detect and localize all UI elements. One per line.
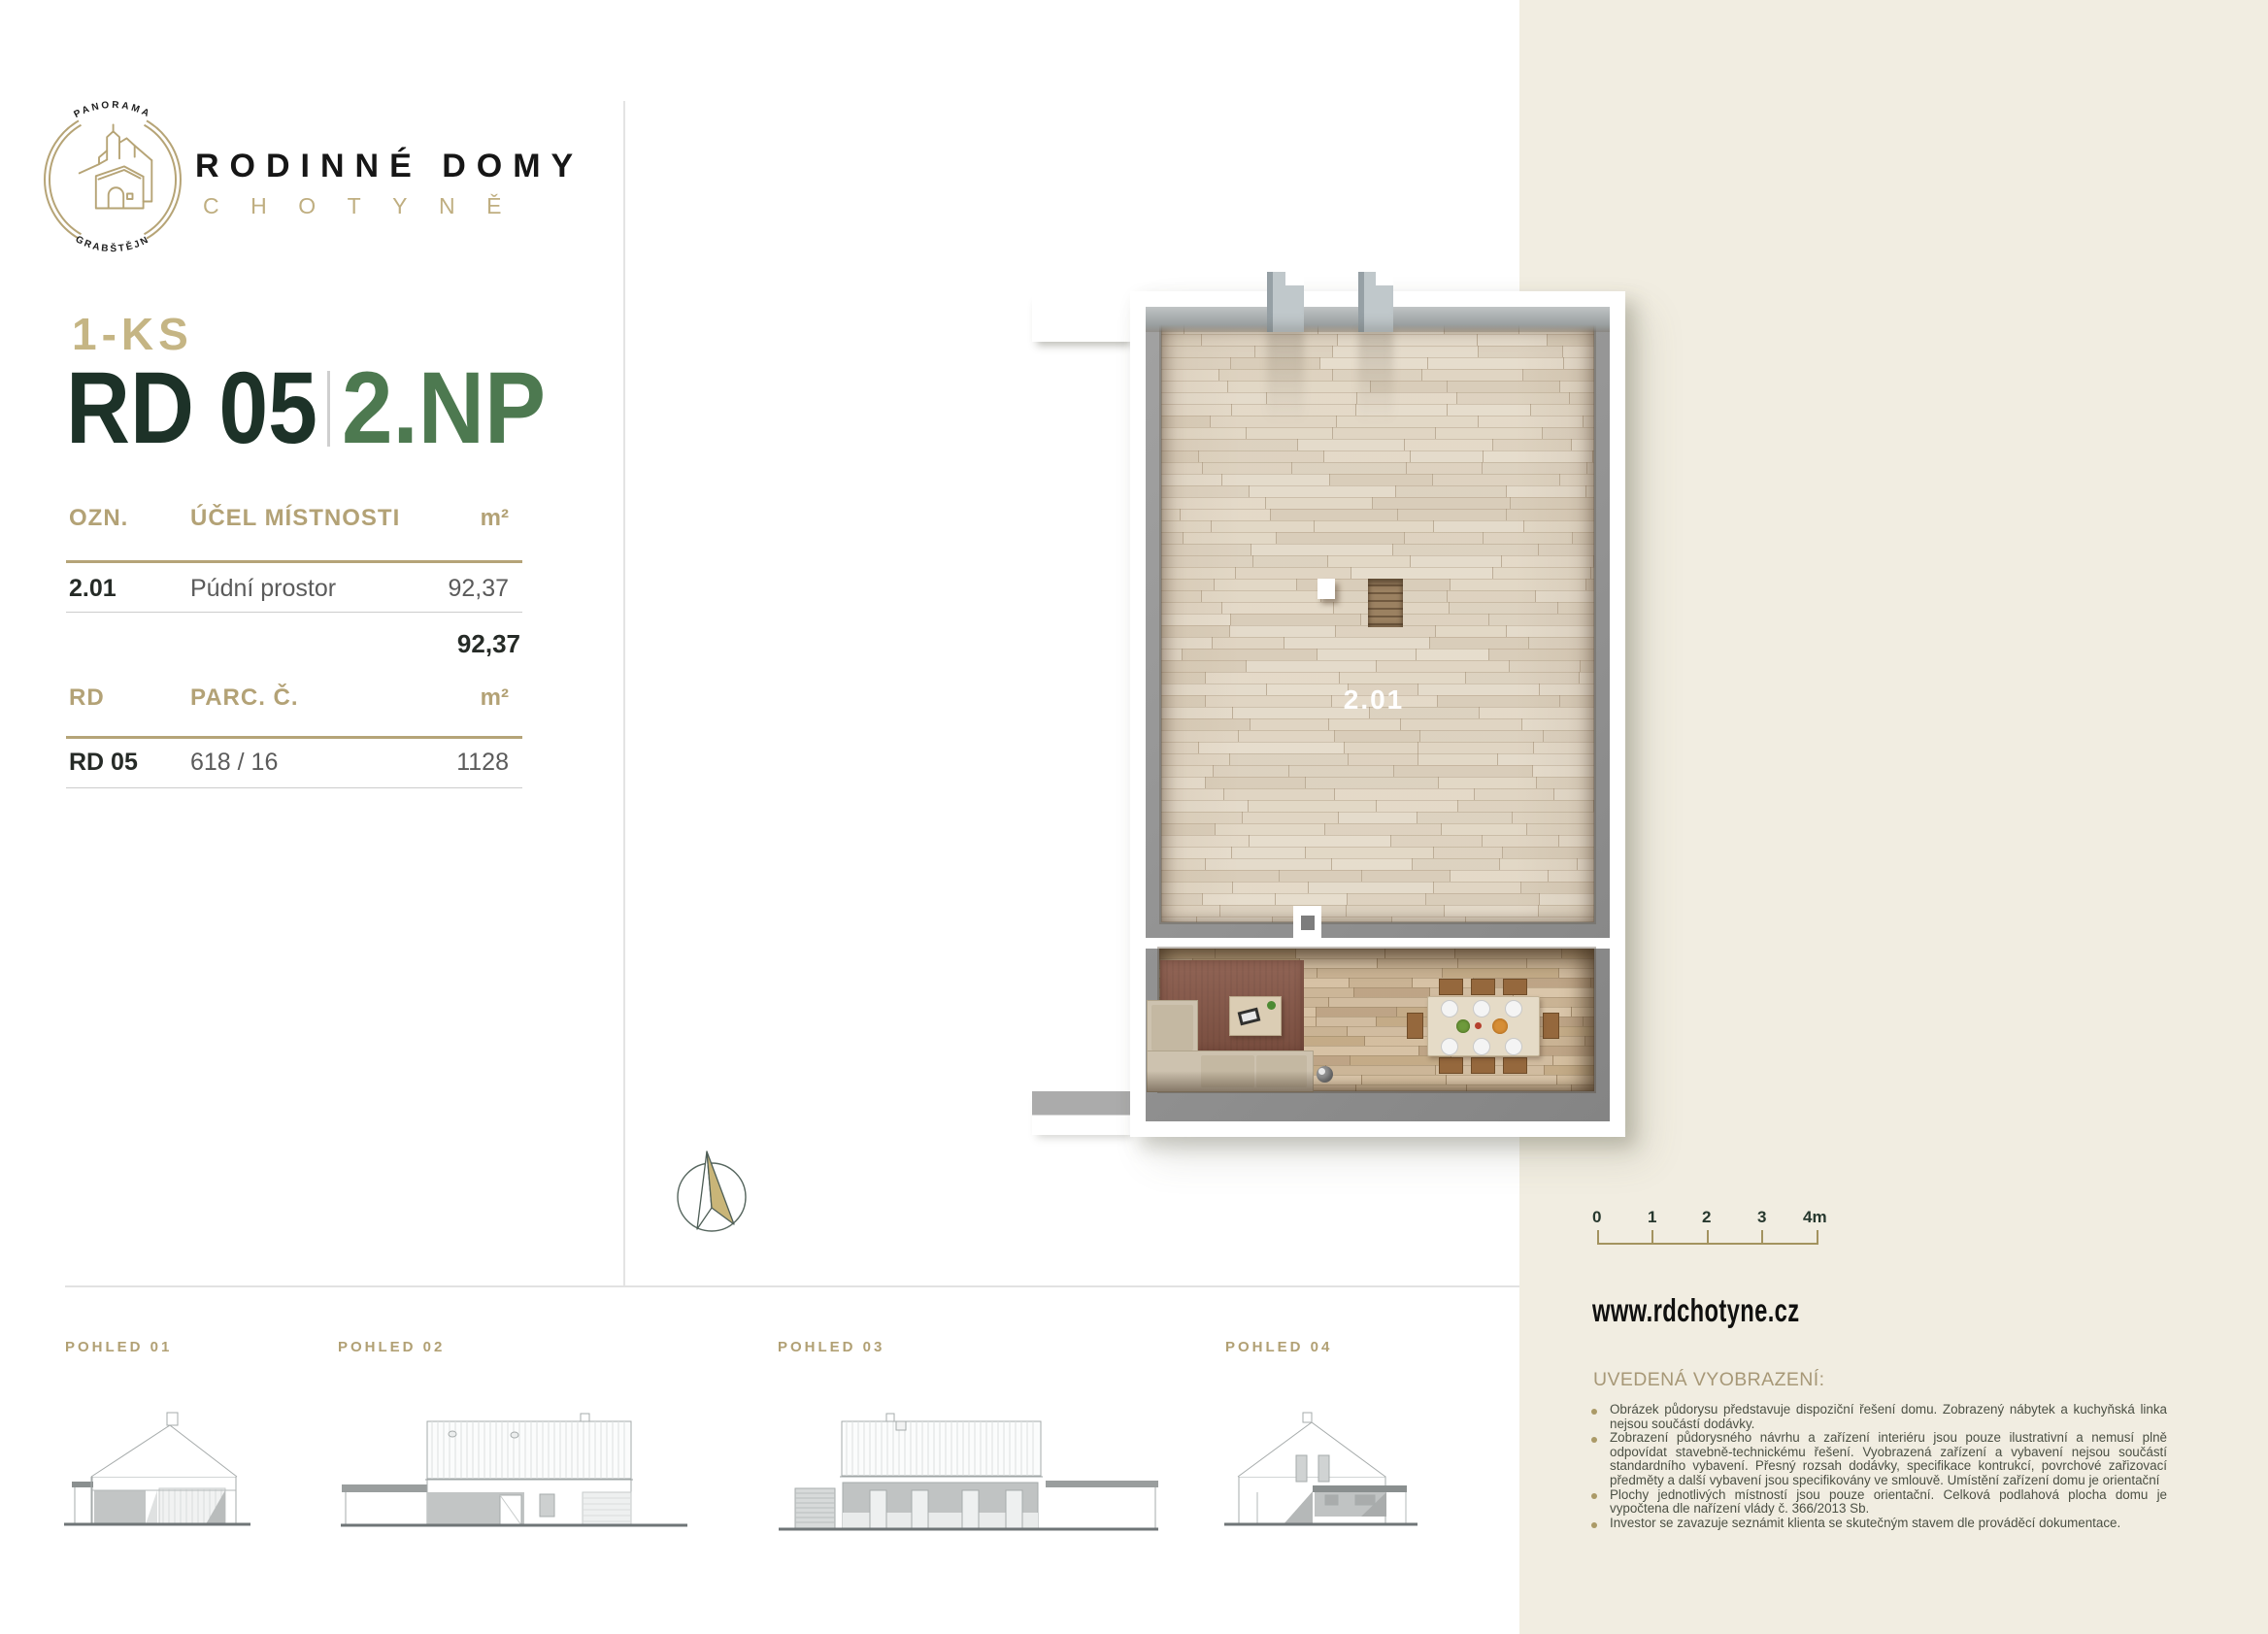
svg-text:PANORAMA: PANORAMA bbox=[72, 100, 152, 120]
svg-text:GRABŠTĚJN: GRABŠTĚJN bbox=[74, 234, 152, 254]
